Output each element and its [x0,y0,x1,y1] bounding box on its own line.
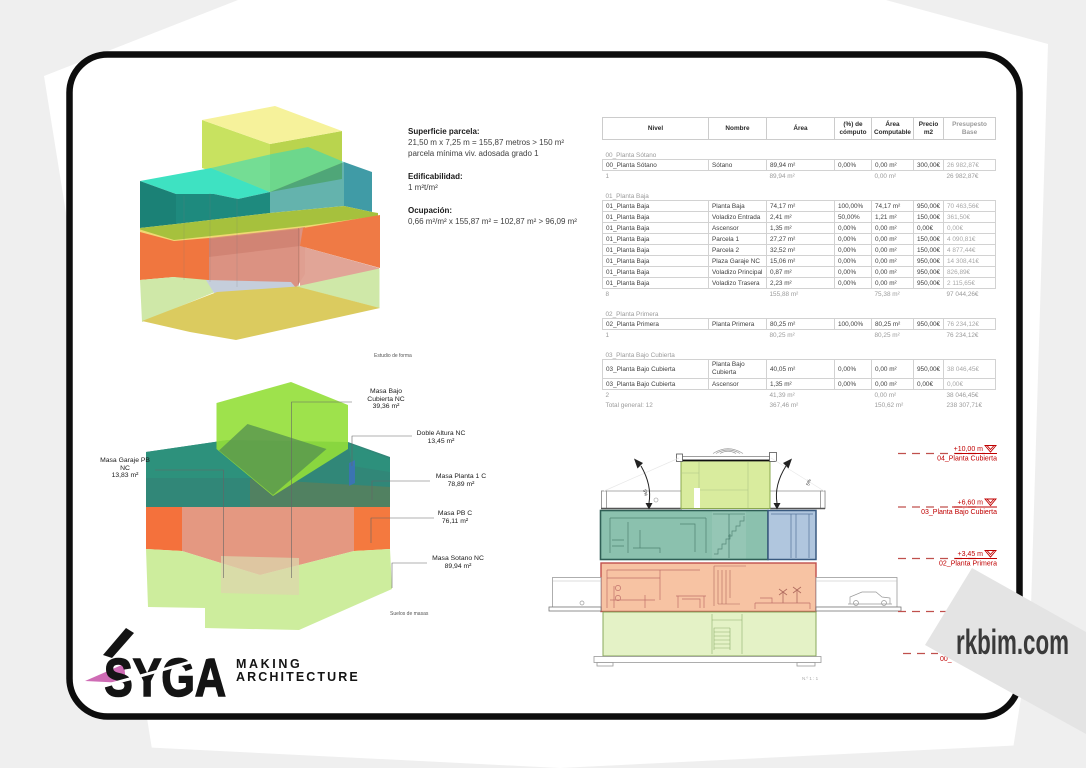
svg-text:MAKING: MAKING [236,657,302,671]
svg-text:03_Planta Bajo Cubierta: 03_Planta Bajo Cubierta [921,509,997,516]
svg-text:04_Planta Cubierta: 04_Planta Cubierta [937,456,997,463]
svg-text:N.º 1 : 1: N.º 1 : 1 [802,676,819,681]
svg-text:+10,00 m: +10,00 m [954,446,984,453]
svg-text:+6,60 m: +6,60 m [958,500,984,507]
svg-text:ARCHITECTURE: ARCHITECTURE [236,670,360,684]
svg-text:rkbim.com: rkbim.com [956,623,1069,662]
svg-text:02_Planta Primera: 02_Planta Primera [939,561,997,568]
svg-text:+3,45 m: +3,45 m [958,551,984,558]
